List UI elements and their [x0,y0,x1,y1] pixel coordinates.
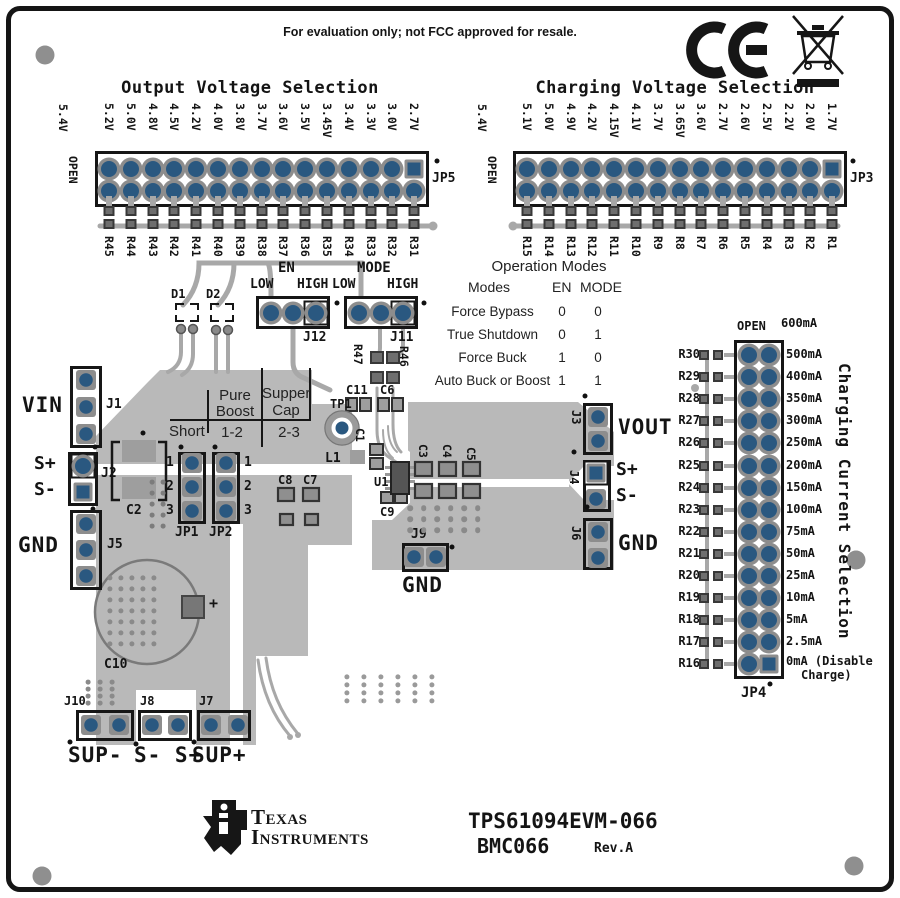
resistor-label: R32 [386,236,398,257]
pin-number: 1 [244,456,252,470]
j1-ref: J1 [106,398,122,412]
resistor-label: R22 [664,525,700,538]
trace-stub [724,574,734,578]
jumper-pin [650,161,666,177]
resistor-label: R6 [717,236,729,250]
jumper-pin [741,480,757,496]
resistor-pad [652,206,663,216]
resistor-label: R19 [664,591,700,604]
resistor-pad [761,206,772,216]
voltage-option-label: 3.6V [277,103,289,131]
via-dot [448,505,454,511]
resistor-label: R8 [674,236,686,250]
resistor-pad [740,219,751,229]
c5-label: C5 [465,447,477,461]
resistor-pad [713,394,723,404]
via-dot [86,687,91,692]
tp1-label: TP1 [330,398,352,411]
jumper-pin [254,161,270,177]
output-voltage-title: Output Voltage Selection [100,80,400,98]
via-dot [434,505,440,511]
trace-stub [724,353,734,357]
resistor-pad [631,206,642,216]
via-dot [110,701,115,706]
jumper-pin [351,305,367,321]
connector-pin [588,407,608,427]
d2-label: D2 [206,288,220,301]
jumper-pin [781,161,797,177]
resistor-label: R1 [826,236,838,250]
current-option-label: 300mA [786,414,822,427]
via-dot [475,505,481,511]
resistor-pad [713,637,723,647]
resistor-label: R27 [664,414,700,427]
connector-pin [76,540,96,560]
jumper-pin [319,161,335,177]
pin-number: 2 [244,480,252,494]
jumper-pin [761,413,777,429]
resistor-pad [409,206,420,216]
resistor-label: R45 [103,236,115,257]
j5-ref: J5 [107,538,123,552]
jumper-pin [761,524,777,540]
mounting-hole [33,867,52,886]
pin1-marker [134,742,139,747]
mode-row-name: Au​to Buck or Boost [425,374,560,388]
connector-pin [81,715,101,735]
jp1-ref: JP1 [175,526,198,540]
pin1-marker [851,159,856,164]
resistor-label: R2 [804,236,816,250]
voltage-option-label: 2.0V [804,103,816,131]
resistor-pad [522,219,533,229]
connector-pin [168,715,188,735]
jumper-pin [741,435,757,451]
resistor-pad [343,219,354,229]
resistor-pad [713,461,723,471]
resistor-pad [699,505,709,515]
resistor-label: R26 [664,436,700,449]
trace-stub [724,419,734,423]
evaluation-notice: For evaluation only; not FCC approved fo… [270,26,590,39]
resistor-label: R33 [365,236,377,257]
via-dot [161,524,166,529]
resistor-pad [718,206,729,216]
via-dot [110,687,115,692]
resistor-pad [543,206,554,216]
jumper-pin [761,546,777,562]
resistor-label: R41 [190,236,202,257]
resistor-pad [699,461,709,471]
connector-pin [588,431,608,451]
jumper-pin [285,305,301,321]
jumper-pin [761,634,777,650]
gnd-label: GND [18,534,59,556]
via-dot [421,527,427,533]
voltage-option-label: 5.2V [103,103,115,131]
pin1-marker [213,445,218,450]
jumper-pin [628,161,644,177]
c6-label: C6 [380,384,394,397]
jumper-pin [563,161,579,177]
j7-ref: J7 [199,695,213,708]
resistor-pad [827,219,838,229]
jumper-pin [741,502,757,518]
resistor-pad [278,206,289,216]
resistor-pad [343,206,354,216]
sense-plus-label: S+ [34,455,56,474]
resistor-label: R15 [521,236,533,257]
jumper-pin [741,590,757,606]
jumper-pin [541,161,557,177]
via-dot [448,516,454,522]
resistor-pad [609,219,620,229]
resistor-pad [300,219,311,229]
jumper-pin [741,458,757,474]
en-header: EN [552,280,571,295]
jumper-pin [741,413,757,429]
jumper-pin [182,501,202,521]
voltage-option-label: 3.8V [234,103,246,131]
connector-pin [74,483,93,502]
j8-ref: J8 [140,695,154,708]
resistor-pad [256,219,267,229]
voltage-option-label: 2.7V [408,103,420,131]
voltage-option-label: 3.65V [674,103,686,138]
jumper-pin [373,305,389,321]
open-option-voltage: 5.4V [476,104,488,132]
trace-stub [724,508,734,512]
mode-row-en: 0 [552,328,572,342]
en-signal-label: EN [278,261,295,276]
vin-label: VIN [22,394,63,416]
resistor-pad [696,219,707,229]
via-dot [434,527,440,533]
resistor-label: R36 [299,236,311,257]
current-option-label: 500mA [786,348,822,361]
resistor-pad [699,659,709,669]
jumper-pin [216,453,236,473]
connector-pin [76,514,96,534]
jumper-pin [166,161,182,177]
trace-stub [724,552,734,556]
pin1-marker [141,431,146,436]
mode-row-en: 0 [552,305,572,319]
via-dot [110,694,115,699]
resistor-label: R17 [664,635,700,648]
resistor-pad [699,571,709,581]
jumper-pin-1 [823,160,842,179]
mode-row-name: Force Buck [425,351,560,365]
resistor-pad [740,206,751,216]
via-dot [475,516,481,522]
mode-signal-label: MODE [357,261,391,276]
trace-stub [724,618,734,622]
jumper-pin [275,161,291,177]
voltage-option-label: 4.5V [168,103,180,131]
trace-stub [724,375,734,379]
mounting-hole [845,857,864,876]
operation-modes-title: Operation Modes [464,259,634,275]
voltage-option-label: 1.7V [826,103,838,131]
resistor-label: R37 [277,236,289,257]
jumper-pin [210,161,226,177]
via-dot [461,516,467,522]
mode-row-mode: 1 [584,328,612,342]
pin1-marker [93,445,98,450]
c9-label: C9 [380,506,394,519]
connector-pin [426,547,446,567]
jumper-pin [715,161,731,177]
mode-low-label: LOW [332,278,355,292]
resistor-pad [696,206,707,216]
jumper-pin [188,161,204,177]
en-low-label: LOW [250,278,273,292]
via-dot [407,527,413,533]
jumper-pin [741,347,757,363]
charging-current-title: Charging Current Selection [835,363,852,639]
supper-cap-label: Cap [268,403,304,419]
voltage-option-label: 4.8V [147,103,159,131]
open-label: OPEN [486,156,498,184]
resistor-label: R30 [664,348,700,361]
resistor-label: R38 [256,236,268,257]
jumper-pin [741,546,757,562]
resistor-label: R16 [664,657,700,670]
j12-ref: J12 [303,331,326,345]
resistor-label: R28 [664,392,700,405]
voltage-option-label: 3.45V [321,103,333,138]
current-option-label: 150mA [786,481,822,494]
current-option-label: 10mA [786,591,815,604]
gnd-label: GND [402,574,443,596]
resistor-pad [718,219,729,229]
c10-label: C10 [104,658,127,672]
jumper-pin-1 [405,160,424,179]
current-option-label: 0mA (Disable [786,655,873,668]
mode-row-en: 1 [552,351,572,365]
resistor-label: R12 [586,236,598,257]
resistor-pad [674,219,685,229]
j6-ref: J6 [569,526,582,540]
mounting-hole [36,46,55,65]
gnd-label: GND [618,532,659,554]
via-dot [448,527,454,533]
jumper-pin [741,612,757,628]
resistor-pad [565,206,576,216]
jumper-pin [672,161,688,177]
via-dot [407,516,413,522]
resistor-pad [713,593,723,603]
voltage-option-label: 5.1V [521,103,533,131]
resistor-pad [169,219,180,229]
resistor-pad [191,206,202,216]
resistor-pad [713,372,723,382]
jumper-pin [761,568,777,584]
resistor-pad [713,527,723,537]
mode-row-mode: 0 [584,351,612,365]
voltage-option-label: 4.15V [608,103,620,138]
via-dot [86,701,91,706]
resistor-pad [387,206,398,216]
jumper-pin [737,161,753,177]
trace-stub [724,662,734,666]
voltage-option-label: 2.2V [783,103,795,131]
resistor-pad [522,206,533,216]
voltage-option-label: 4.2V [586,103,598,131]
pin1-marker [572,450,577,455]
modes-header: Modes [468,280,510,295]
resistor-pad [631,219,642,229]
en-high-label: HIGH [297,278,328,292]
trace-stub [724,441,734,445]
via-dot [86,694,91,699]
mode-header: MODE [580,280,622,295]
trace-stub [724,530,734,534]
resistor-pad [587,206,598,216]
current-option-label: 50mA [786,547,815,560]
resistor-pad [609,206,620,216]
jumper-pin [606,161,622,177]
connector-pin [76,397,96,417]
resistor-pad [213,219,224,229]
resistor-label: R44 [125,236,137,257]
resistor-pad [365,219,376,229]
resistor-pad [805,206,816,216]
resistor-pad [322,219,333,229]
sup-minus-label: SUP- [68,744,123,766]
via-dot [407,505,413,511]
resistor-pad [104,206,115,216]
voltage-option-label: 4.0V [212,103,224,131]
current-option-label: 75mA [786,525,815,538]
resistor-pad [104,219,115,229]
jumper-pin [761,369,777,385]
pure-boost-label: Pure [210,388,260,404]
resistor-pad [652,219,663,229]
current-option-label: 400mA [786,370,822,383]
mode-row-mode: 0 [584,305,612,319]
via-dot [421,505,427,511]
jumper-pin [341,161,357,177]
voltage-option-label: 3.5V [299,103,311,131]
voltage-option-label: 3.3V [365,103,377,131]
pin1-marker [585,505,590,510]
resistor-pad [565,219,576,229]
resistor-pad [387,219,398,229]
connector-pin [76,566,96,586]
resistor-pad [699,549,709,559]
resistor-pad [805,219,816,229]
resistor-pad [713,615,723,625]
j3-ref: J3 [569,410,582,424]
supper-cap-setting: 2-3 [275,425,303,441]
sense-minus-label: S- [34,481,56,500]
resistor-label: R24 [664,481,700,494]
supper-cap-label: Supper [262,386,310,402]
resistor-pad [699,394,709,404]
resistor-label: R42 [168,236,180,257]
jumper-pin [741,634,757,650]
voltage-option-label: 3.6V [695,103,707,131]
connector-pin [228,715,248,735]
resistor-pad [713,483,723,493]
c8-label: C8 [278,474,292,487]
resistor-label: R7 [695,236,707,250]
jp2-ref: JP2 [209,526,232,540]
jumper-pin [216,477,236,497]
resistor-label: R29 [664,370,700,383]
jumper-pin [232,161,248,177]
voltage-option-label: 2.5V [761,103,773,131]
resistor-pad [234,206,245,216]
mode-row-mode: 1 [584,374,612,388]
current-option-label: 100mA [786,503,822,516]
resistor-pad [761,219,772,229]
jumper-pin [741,369,757,385]
jumper-pin [308,305,324,321]
resistor-pad [365,206,376,216]
resistor-pad [713,350,723,360]
resistor-pad [699,527,709,537]
pure-boost-setting: 1-2 [218,425,246,441]
resistor-pad [713,505,723,515]
mode-high-label: HIGH [387,278,418,292]
manufacturer-name: Instruments [251,826,369,848]
mode-row-en: 1 [552,374,572,388]
resistor-label: R23 [664,503,700,516]
jumper-pin [584,161,600,177]
current-option-label: 250mA [786,436,822,449]
board-code: BMC066 [477,836,549,857]
resistor-pad [191,219,202,229]
jumper-pin [761,480,777,496]
trace-stub [724,397,734,401]
pin1-marker [192,740,197,745]
jumper-pin [693,161,709,177]
part-number: TPS61094EVM-066 [468,810,658,832]
pin1-marker [335,301,340,306]
j10-ref: J10 [64,695,86,708]
resistor-label: R4 [761,236,773,250]
r47-label: R47 [352,344,364,365]
sense-minus-label: S- [616,487,638,506]
via-dot [161,480,166,485]
open-label: OPEN [737,320,766,333]
via-dot [434,516,440,522]
resistor-label: R5 [739,236,751,250]
resistor-pad [147,219,158,229]
resistor-label: R39 [234,236,246,257]
resistor-pad [169,206,180,216]
via-dot [161,491,166,496]
jumper-pin [297,161,313,177]
via-dot [475,527,481,533]
via-dot [98,701,103,706]
via-dot [150,502,155,507]
jp4-ref: JP4 [741,686,766,701]
resistor-pad [300,206,311,216]
resistor-label: R43 [147,236,159,257]
jumper-pin [761,391,777,407]
jumper-pin [519,161,535,177]
pin-number: 3 [166,504,174,518]
jumper-pin [761,458,777,474]
voltage-option-label: 2.7V [717,103,729,131]
pin1-marker [768,682,773,687]
current-option-label: 25mA [786,569,815,582]
voltage-option-label: 2.6V [739,103,751,131]
